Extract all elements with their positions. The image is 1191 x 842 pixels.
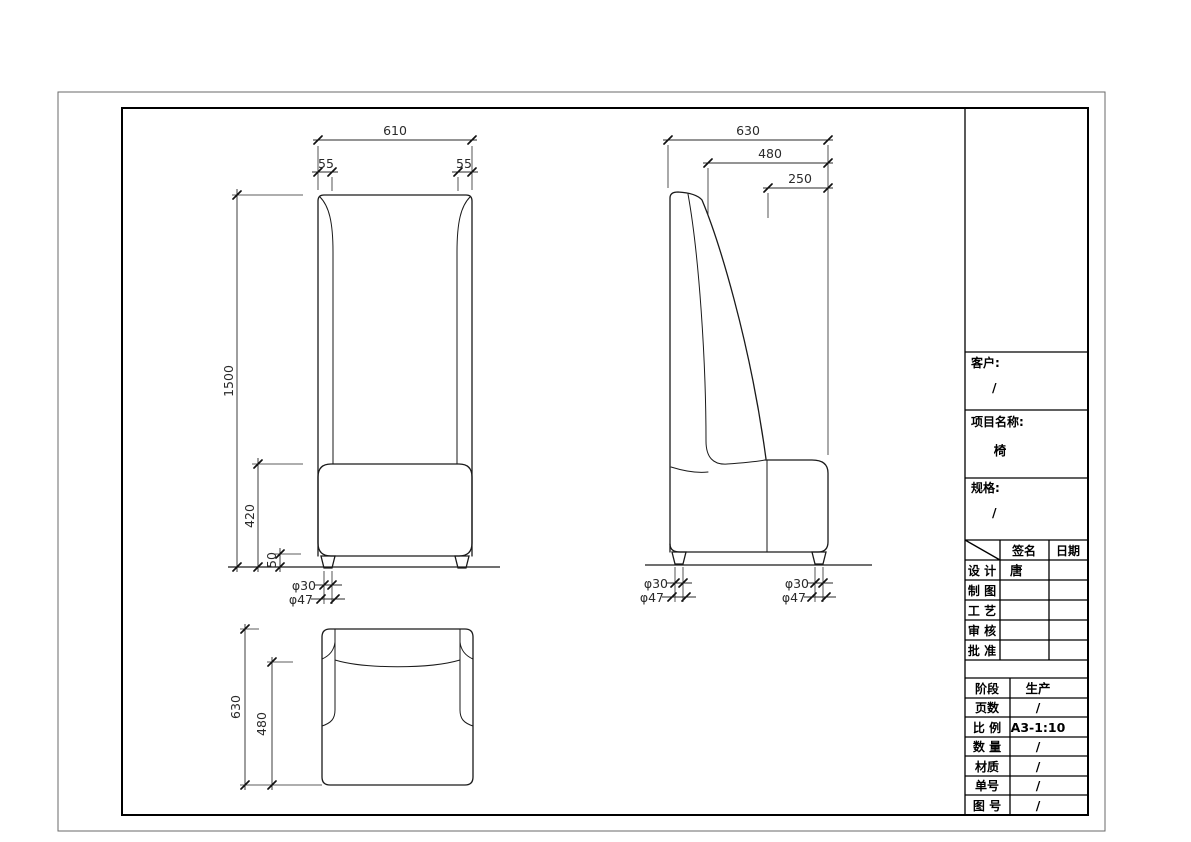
dim-side-front-leg-bottom: φ30 xyxy=(785,576,809,591)
dim-side-rear-leg-top: φ47 xyxy=(640,590,664,605)
sign-col-header: 签名 xyxy=(1011,543,1036,558)
front-seat-outline xyxy=(318,464,472,556)
sign-row-label: 审 核 xyxy=(968,623,996,638)
dim-side-rear-leg-bottom: φ30 xyxy=(644,576,668,591)
top-left-post-line xyxy=(322,629,335,726)
front-backrest-outline xyxy=(318,195,472,556)
info-row-value: A3-1:10 xyxy=(1011,720,1066,735)
top-extension-lines xyxy=(240,629,322,785)
dim-top-depth: 630 xyxy=(228,695,243,719)
dim-side-front-leg-top: φ47 xyxy=(782,590,806,605)
front-right-leg xyxy=(455,556,469,568)
project-label: 项目名称: xyxy=(971,414,1024,429)
side-dimensions: 630 480 250 φ30 φ47 φ30 φ47 xyxy=(640,123,836,605)
sign-row-label: 批 准 xyxy=(968,643,996,658)
cad-canvas: 610 55 55 1500 420 50 φ30 φ47 630 480 25… xyxy=(0,0,1191,842)
front-right-post-inner-edge xyxy=(457,197,470,464)
top-dimensions: 630 480 xyxy=(228,624,322,790)
dim-side-top-offset: 250 xyxy=(788,171,812,186)
side-view: 630 480 250 φ30 φ47 φ30 φ47 xyxy=(640,123,872,605)
dim-front-seat-height: 420 xyxy=(242,504,257,528)
info-row-label: 单号 xyxy=(975,778,999,793)
side-dim-lines xyxy=(662,140,836,597)
dim-front-height: 1500 xyxy=(221,365,236,397)
dim-side-depth: 630 xyxy=(736,123,760,138)
drawing-frame xyxy=(122,108,1088,815)
info-row-value: 生产 xyxy=(1025,681,1050,696)
customer-label: 客户: xyxy=(970,355,1000,370)
info-row-label: 数 量 xyxy=(973,739,1001,754)
top-outline xyxy=(322,629,473,785)
info-row-value: / xyxy=(1036,798,1041,813)
info-row-label: 图 号 xyxy=(973,798,1001,813)
top-cushion-curve xyxy=(335,660,460,667)
top-dim-ticks xyxy=(241,625,276,789)
info-row-label: 页数 xyxy=(975,700,1000,715)
dim-front-post-left: 55 xyxy=(318,156,334,171)
info-row-value: / xyxy=(1036,700,1041,715)
dim-front-leg-height: 50 xyxy=(264,552,279,568)
info-row-label: 比 例 xyxy=(973,720,1001,735)
page-border xyxy=(58,92,1105,831)
info-row-value: / xyxy=(1036,778,1041,793)
side-rear-leg xyxy=(672,552,686,564)
sign-row-label: 工 艺 xyxy=(968,603,996,618)
date-col-header: 日期 xyxy=(1056,543,1080,558)
top-right-corner-arc xyxy=(460,642,473,659)
spec-label: 规格: xyxy=(971,480,1000,495)
project-value: 椅 xyxy=(994,443,1007,458)
side-extension-lines xyxy=(668,145,828,602)
title-block: 客户: / 项目名称: 椅 规格: / 签名 日期 设 计 唐 制 图 工 艺 … xyxy=(965,108,1088,815)
top-dim-lines xyxy=(245,624,272,790)
sign-row-label: 制 图 xyxy=(968,583,996,598)
top-right-post-line xyxy=(460,629,473,726)
front-dim-ticks xyxy=(233,136,476,603)
dim-front-post-right: 55 xyxy=(456,156,472,171)
side-backrest-inner-curve xyxy=(688,194,765,464)
signature-table-grid xyxy=(965,540,1088,660)
side-backrest-outline xyxy=(670,192,766,552)
info-row-value: / xyxy=(1036,759,1041,774)
dim-front-leg-dia-bottom: φ30 xyxy=(292,578,316,593)
side-seat-seam xyxy=(671,467,708,472)
info-row-label: 阶段 xyxy=(975,681,1000,696)
side-front-leg xyxy=(812,552,826,564)
sign-row-label: 设 计 xyxy=(968,563,996,578)
customer-value: / xyxy=(992,380,997,395)
dim-front-leg-dia-top: φ47 xyxy=(289,592,313,607)
dim-front-width: 610 xyxy=(383,123,407,138)
front-left-leg xyxy=(321,556,335,568)
front-left-post-inner-edge xyxy=(320,197,333,464)
front-view: 610 55 55 1500 420 50 φ30 φ47 xyxy=(221,123,500,607)
spec-value: / xyxy=(992,505,997,520)
drawing-sheet: 610 55 55 1500 420 50 φ30 φ47 630 480 25… xyxy=(0,0,1191,842)
side-seat-outline xyxy=(670,460,828,552)
dim-top-seat-depth: 480 xyxy=(254,712,269,736)
front-dim-lines xyxy=(237,140,478,599)
front-extension-lines xyxy=(232,146,472,604)
side-dim-ticks xyxy=(664,136,832,601)
info-row-value: / xyxy=(1036,739,1041,754)
sign-row-sign: 唐 xyxy=(1010,563,1023,578)
top-left-corner-arc xyxy=(322,642,335,659)
top-view: 630 480 xyxy=(228,624,473,790)
dim-side-seat-depth: 480 xyxy=(758,146,782,161)
info-row-label: 材质 xyxy=(974,759,999,774)
